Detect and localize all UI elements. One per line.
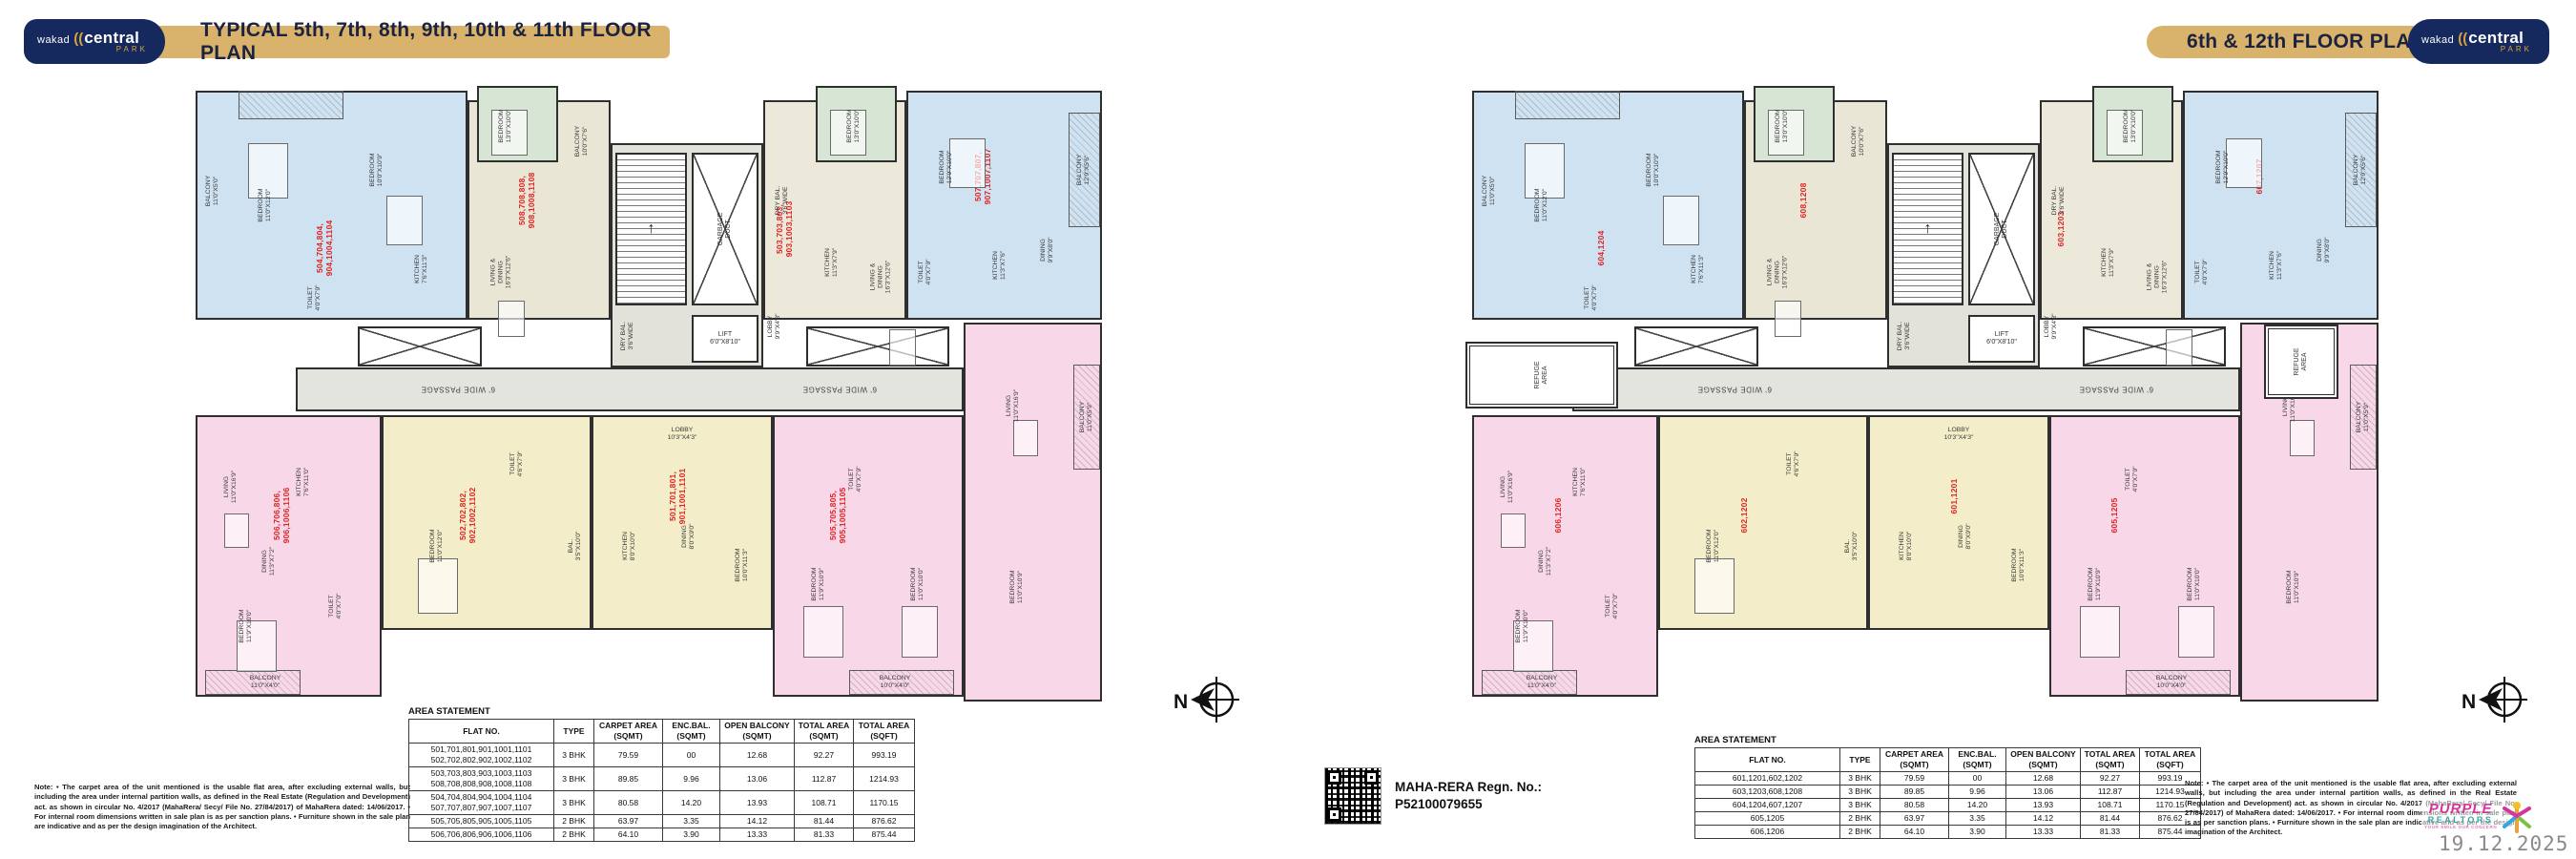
room-label: LIVING & DINING 16'3"X12'6" bbox=[2146, 261, 2168, 294]
passage-label: 6' WIDE PASSAGE bbox=[421, 385, 495, 393]
area-table-cell: 12.68 bbox=[2006, 772, 2081, 786]
room-label: BALCONY 12'9"X5'6" bbox=[1076, 155, 1091, 185]
area-table-header: ENC.BAL. (SQMT) bbox=[1949, 748, 2006, 772]
balcony-rail bbox=[239, 91, 343, 119]
flat-number-label: 506,706,806, 906,1006,1106 bbox=[272, 488, 291, 544]
furniture bbox=[1663, 196, 1699, 245]
area-table-cell: 108.71 bbox=[795, 791, 854, 815]
flat-number-label: 604,1204 bbox=[1596, 230, 1606, 265]
room-label: BEDROOM 11'9"X10'9" bbox=[811, 567, 826, 600]
floor-plan-unit bbox=[196, 91, 467, 320]
room-label: TOILET 4'6"X7'9" bbox=[509, 450, 525, 476]
area-table-row: 605,12052 BHK63.973.3514.1281.44876.62 bbox=[1695, 812, 2201, 826]
qr-finder-icon bbox=[1327, 770, 1341, 785]
area-table-cell: 3.90 bbox=[663, 828, 720, 842]
room-label: DRY BAL. 3'6"WIDE bbox=[1897, 322, 1912, 351]
area-table-cell: 81.44 bbox=[2081, 812, 2140, 826]
furniture bbox=[902, 606, 938, 658]
room-label: BALCONY 12'9"X5'6" bbox=[2353, 155, 2368, 185]
rera-number: P52100079655 bbox=[1395, 796, 1542, 813]
area-table-cell: 13.33 bbox=[2006, 826, 2081, 839]
area-table-row: 604,1204,607,12073 BHK80.5814.2013.93108… bbox=[1695, 799, 2201, 812]
area-table-row: 506,706,806,906,1006,11062 BHK64.103.901… bbox=[409, 828, 915, 842]
brand-logo-left: wakad (( central PARK bbox=[24, 19, 165, 64]
room-label: DINING 8'0"X9'0" bbox=[681, 523, 696, 549]
area-table-cell: 13.93 bbox=[720, 791, 795, 815]
area-table-cell: 63.97 bbox=[1880, 812, 1949, 826]
flat-number-label: 501,701,801, 901,1001,1101 bbox=[668, 469, 687, 525]
realtors-name-line2: REALTORS bbox=[2424, 816, 2497, 825]
room-label: BEDROOM 11'0"X10'0" bbox=[910, 567, 925, 600]
room-label: TOILET 4'0"X7'9" bbox=[2194, 259, 2210, 284]
rera-label: MAHA-RERA Regn. No.: bbox=[1395, 779, 1542, 796]
area-table-header: TYPE bbox=[1840, 748, 1880, 772]
area-table-header: FLAT NO. bbox=[1695, 748, 1840, 772]
room-label: BALCONY 11'0"X5'0" bbox=[205, 176, 220, 206]
room-label: BEDROOM 11'0"X10'9" bbox=[1009, 570, 1025, 603]
refuge-area-label: REFUGE AREA bbox=[1534, 361, 1549, 388]
furniture bbox=[2178, 606, 2214, 658]
rera-block: MAHA-RERA Regn. No.: P52100079655 bbox=[1324, 767, 1542, 825]
area-table-cell: 64.10 bbox=[1880, 826, 1949, 839]
furniture bbox=[224, 513, 249, 548]
room-label: LOBBY 9'9"X4'3" bbox=[767, 313, 782, 339]
furniture bbox=[2080, 606, 2120, 658]
area-table-row: 606,12062 BHK64.103.9013.3381.33875.44 bbox=[1695, 826, 2201, 839]
room-label: BEDROOM 11'9"X10'0" bbox=[239, 609, 254, 642]
north-compass-right: N bbox=[2460, 670, 2534, 734]
area-table-cell: 2 BHK bbox=[1840, 826, 1880, 839]
refuge-area-label: REFUGE AREA bbox=[2294, 347, 2309, 375]
area-table-cell: 13.33 bbox=[720, 828, 795, 842]
area-table-header: TOTAL AREA (SQFT) bbox=[2140, 748, 2201, 772]
room-label: DINING 11'3"X7'2" bbox=[261, 547, 277, 576]
right-plan-title: 6th & 12th FLOOR PLAN bbox=[2187, 31, 2425, 53]
date-stamp: 19.12.2025 bbox=[2439, 832, 2568, 855]
area-table-cell: 79.59 bbox=[1880, 772, 1949, 786]
room-label: KITCHEN 11'3"X7'6" bbox=[2269, 251, 2284, 280]
area-table-row: 504,704,804,904,1004,1104 507,707,807,90… bbox=[409, 791, 915, 815]
flat-number-label: 502,702,802, 902,1002,1102 bbox=[458, 488, 477, 544]
room-label: KITCHEN 11'3"X7'9" bbox=[2101, 248, 2116, 277]
flat-number-label: 608,1208 bbox=[1798, 182, 1808, 218]
room-label: BEDROOM 12'9"X10'0" bbox=[2215, 150, 2231, 183]
lift-label: LIFT 6'0"X8'10" bbox=[710, 331, 740, 346]
left-plan-title: TYPICAL 5th, 7th, 8th, 9th, 10th & 11th … bbox=[200, 19, 670, 65]
flat-number-label: 605,1205 bbox=[2109, 497, 2119, 533]
room-label: BEDROOM 11'0"X10'0" bbox=[2187, 567, 2202, 600]
room-label: KITCHEN 7'6"X11'0" bbox=[1572, 468, 1588, 496]
area-table-cell: 9.96 bbox=[663, 767, 720, 791]
service-duct bbox=[358, 326, 482, 367]
area-table-cell: 3 BHK bbox=[1840, 799, 1880, 812]
room-label: KITCHEN 11'3"X7'6" bbox=[992, 251, 1008, 280]
room-label: TOILET 4'0"X7'9" bbox=[1584, 284, 1599, 310]
room-label: DINING 9'9"X8'0" bbox=[2316, 237, 2332, 262]
furniture bbox=[2166, 329, 2192, 366]
realtors-tagline: YOUR SMILE OUR CONCERN bbox=[2424, 826, 2497, 830]
room-label: KITCHEN 7'6"X11'3" bbox=[414, 255, 429, 283]
room-label: LIVING 11'0"X16'9" bbox=[1500, 471, 1515, 503]
area-table-cell: 112.87 bbox=[795, 767, 854, 791]
furniture bbox=[498, 301, 525, 337]
area-table-cell: 14.12 bbox=[2006, 812, 2081, 826]
area-table-cell: 80.58 bbox=[1880, 799, 1949, 812]
staircase: ↑ bbox=[1892, 153, 1963, 305]
area-table-cell: 2 BHK bbox=[554, 815, 594, 828]
room-label: LOBBY 10'3"X4'3" bbox=[1944, 427, 1974, 442]
area-table-cell: 14.12 bbox=[720, 815, 795, 828]
room-label: BEDROOM 10'0"X11'3" bbox=[735, 548, 750, 581]
floor-plan-right: 604,1204608,1208603,1203607,1207606,1206… bbox=[1458, 86, 2393, 706]
area-table-cell: 876.62 bbox=[854, 815, 915, 828]
area-table-header: TYPE bbox=[554, 720, 594, 744]
staircase: ↑ bbox=[615, 153, 687, 305]
area-table-cell: 606,1206 bbox=[1695, 826, 1840, 839]
area-table-cell: 64.10 bbox=[594, 828, 663, 842]
realtors-name-line1: PURPLE bbox=[2424, 802, 2497, 816]
room-label: BALCONY 10'0"X4'0" bbox=[2156, 675, 2187, 690]
room-label: KITCHEN 7'6"X11'0" bbox=[296, 468, 311, 496]
area-table-cell: 603,1203,608,1208 bbox=[1695, 786, 1840, 799]
room-label: DRY BAL. 3'6"WIDE bbox=[775, 186, 790, 216]
logo-arcs-icon: (( bbox=[2458, 31, 2467, 46]
lift-label: LIFT 6'0"X8'10" bbox=[1986, 331, 2017, 346]
room-label: LOBBY 9'9"X4'3" bbox=[2044, 313, 2059, 339]
room-label: TOILET 4'0"X7'0" bbox=[1605, 593, 1620, 618]
furniture bbox=[1775, 301, 1801, 337]
area-table-cell: 604,1204,607,1207 bbox=[1695, 799, 1840, 812]
room-label: TOILET 4'0"X7'0" bbox=[328, 593, 343, 618]
area-table-cell: 506,706,806,906,1006,1106 bbox=[409, 828, 554, 842]
room-label: LIVING & DINING 16'3"X12'6" bbox=[1766, 256, 1788, 289]
service-duct bbox=[1634, 326, 1758, 367]
room-label: DINING 11'3"X7'2" bbox=[1538, 547, 1553, 576]
area-table-cell: 3 BHK bbox=[554, 744, 594, 767]
furniture bbox=[2226, 138, 2262, 188]
area-table-cell: 89.85 bbox=[594, 767, 663, 791]
stair-up-arrow-icon: ↑ bbox=[1924, 220, 1932, 238]
logo-wakad-text: wakad bbox=[2421, 35, 2454, 46]
logo-central-text: central bbox=[84, 30, 139, 46]
area-table-header: ENC.BAL. (SQMT) bbox=[663, 720, 720, 744]
area-table-cell: 14.20 bbox=[663, 791, 720, 815]
room-label: KITCHEN 7'6"X11'3" bbox=[1691, 255, 1706, 283]
room-label: DINING 8'0"X9'0" bbox=[1958, 523, 1973, 549]
logo-arcs-icon: (( bbox=[73, 31, 83, 46]
room-label: BALCONY 11'0"X5'0" bbox=[1482, 176, 1497, 206]
room-label: KITCHEN 8'0"X10'0" bbox=[1899, 532, 1914, 561]
qr-finder-icon bbox=[1327, 807, 1341, 822]
room-label: LIVING 11'0"X16'9" bbox=[223, 471, 239, 503]
svg-text:N: N bbox=[2462, 691, 2476, 713]
room-label: BEDROOM 10'0"X10'9" bbox=[369, 153, 384, 186]
flat-number-label: 602,1202 bbox=[1739, 497, 1749, 533]
garbage-duct-label: GARBAGE DUCT bbox=[1994, 213, 2009, 246]
room-label: BEDROOM 10'0"X10'9" bbox=[1646, 153, 1661, 186]
area-table-cell: 13.06 bbox=[720, 767, 795, 791]
area-table-header: CARPET AREA (SQMT) bbox=[1880, 748, 1949, 772]
area-table-cell: 3 BHK bbox=[1840, 786, 1880, 799]
furniture bbox=[1501, 513, 1526, 548]
area-table-cell: 80.58 bbox=[594, 791, 663, 815]
room-label: LIVING 11'0"X16'9" bbox=[1006, 389, 1021, 422]
area-table-cell: 3.90 bbox=[1949, 826, 2006, 839]
room-label: BEDROOM 11'0"X12'0" bbox=[1706, 529, 1721, 562]
area-table-left: FLAT NO.TYPECARPET AREA (SQMT)ENC.BAL. (… bbox=[408, 719, 915, 842]
area-table-cell: 13.06 bbox=[2006, 786, 2081, 799]
north-compass-left: N bbox=[1172, 670, 1246, 734]
svg-text:N: N bbox=[1174, 691, 1188, 713]
room-label: BEDROOM 13'0"X10'0" bbox=[846, 109, 862, 142]
area-table-cell: 605,1205 bbox=[1695, 812, 1840, 826]
area-table-cell: 81.33 bbox=[795, 828, 854, 842]
flat-number-label: 606,1206 bbox=[1553, 497, 1563, 533]
floor-plan-unit bbox=[382, 415, 592, 630]
qr-finder-icon bbox=[1364, 770, 1379, 785]
room-label: TOILET 4'0"X7'9" bbox=[848, 466, 863, 492]
flat-number-label: 508,708,808, 908,1008,1108 bbox=[517, 173, 536, 229]
room-label: BEDROOM 11'0"X12'0" bbox=[258, 188, 273, 221]
room-label: TOILET 4'0"X7'9" bbox=[918, 259, 933, 284]
room-label: KITCHEN 8'0"X10'0" bbox=[622, 532, 637, 561]
area-table-cell: 875.44 bbox=[854, 828, 915, 842]
furniture bbox=[889, 329, 916, 366]
area-table-cell: 79.59 bbox=[594, 744, 663, 767]
area-table-cell: 3.35 bbox=[1949, 812, 2006, 826]
flat-number-label: 504,704,804, 904,1004,1104 bbox=[315, 220, 334, 277]
room-label: BAL. 3'5"X10'0" bbox=[568, 532, 583, 561]
area-table-cell: 00 bbox=[1949, 772, 2006, 786]
room-label: BAL. 3'5"X10'0" bbox=[1844, 532, 1859, 561]
furniture bbox=[949, 138, 986, 188]
floor-plan-unit bbox=[196, 415, 382, 697]
service-duct bbox=[806, 326, 949, 367]
room-label: BALCONY 11'0"X5'9" bbox=[2356, 402, 2371, 432]
room-label: BEDROOM 10'0"X11'3" bbox=[2011, 548, 2026, 581]
area-statement-title: AREA STATEMENT bbox=[1694, 735, 2201, 745]
area-statement-title: AREA STATEMENT bbox=[408, 706, 915, 717]
area-table-right: FLAT NO.TYPECARPET AREA (SQMT)ENC.BAL. (… bbox=[1694, 747, 2201, 839]
area-table-row: 505,705,805,905,1005,11052 BHK63.973.351… bbox=[409, 815, 915, 828]
passage-label: 6' WIDE PASSAGE bbox=[802, 385, 877, 393]
room-label: TOILET 4'6"X7'9" bbox=[1786, 450, 1801, 476]
passage-label: 6' WIDE PASSAGE bbox=[1697, 385, 1772, 393]
area-statement-left: AREA STATEMENT FLAT NO.TYPECARPET AREA (… bbox=[408, 706, 915, 842]
room-label: DRY BAL. 3'6"WIDE bbox=[2051, 186, 2067, 216]
area-table-row: 603,1203,608,12083 BHK89.859.9613.06112.… bbox=[1695, 786, 2201, 799]
note-left: Note: • The carpet area of the unit ment… bbox=[34, 783, 410, 831]
area-table-row: 503,703,803,903,1003,1103 508,708,808,90… bbox=[409, 767, 915, 791]
area-table-cell: 2 BHK bbox=[1840, 812, 1880, 826]
furniture bbox=[1013, 420, 1038, 456]
area-table-header: OPEN BALCONY (SQMT) bbox=[720, 720, 795, 744]
logo-park-text: PARK bbox=[2501, 46, 2532, 53]
area-table-row: 501,701,801,901,1001,1101 502,702,802,90… bbox=[409, 744, 915, 767]
area-table-cell: 13.93 bbox=[2006, 799, 2081, 812]
room-label: KITCHEN 11'3"X7'9" bbox=[824, 248, 840, 277]
room-label: BEDROOM 13'0"X10'0" bbox=[2123, 109, 2138, 142]
room-label: BEDROOM 11'0"X12'0" bbox=[1534, 188, 1549, 221]
area-table-row: 601,1201,602,12023 BHK79.590012.6892.279… bbox=[1695, 772, 2201, 786]
floor-plan-unit bbox=[1472, 91, 1744, 320]
realtors-logo: PURPLE REALTORS YOUR SMILE OUR CONCERN bbox=[2421, 798, 2536, 834]
logo-wakad-text: wakad bbox=[37, 35, 70, 46]
area-table-cell: 503,703,803,903,1003,1103 508,708,808,90… bbox=[409, 767, 554, 791]
room-label: BEDROOM 11'9"X10'9" bbox=[2088, 567, 2103, 600]
area-table-header: FLAT NO. bbox=[409, 720, 554, 744]
room-label: BEDROOM 11'0"X12'0" bbox=[429, 529, 445, 562]
area-table-cell: 3 BHK bbox=[1840, 772, 1880, 786]
area-table-header: CARPET AREA (SQMT) bbox=[594, 720, 663, 744]
floor-plan-left: 504,704,804, 904,1004,1104508,708,808, 9… bbox=[181, 86, 1116, 706]
room-label: BALCONY 11'0"X4'0" bbox=[250, 675, 280, 690]
area-table-cell: 81.33 bbox=[2081, 826, 2140, 839]
area-table-cell: 00 bbox=[663, 744, 720, 767]
area-table-cell: 3.35 bbox=[663, 815, 720, 828]
area-table-cell: 3 BHK bbox=[554, 791, 594, 815]
flat-number-label: 603,1203 bbox=[2056, 211, 2066, 246]
area-statement-right: AREA STATEMENT FLAT NO.TYPECARPET AREA (… bbox=[1694, 735, 2201, 839]
furniture bbox=[2290, 420, 2315, 456]
flat-number-label: 601,1201 bbox=[1949, 478, 1959, 513]
floor-plan-unit bbox=[1658, 415, 1868, 630]
area-table-cell: 89.85 bbox=[1880, 786, 1949, 799]
furniture bbox=[386, 196, 423, 245]
stair-up-arrow-icon: ↑ bbox=[648, 220, 655, 238]
service-duct bbox=[2083, 326, 2226, 367]
logo-central-text: central bbox=[2468, 30, 2524, 46]
room-label: LIVING & DINING 16'3"X12'6" bbox=[489, 256, 511, 289]
qr-code bbox=[1324, 767, 1381, 825]
north-compass-icon: N bbox=[2460, 670, 2534, 729]
room-label: BEDROOM 12'9"X10'0" bbox=[939, 150, 954, 183]
room-label: BEDROOM 11'0"X10'9" bbox=[2286, 570, 2301, 603]
area-table-cell: 1170.15 bbox=[854, 791, 915, 815]
area-table-cell: 12.68 bbox=[720, 744, 795, 767]
room-label: BALCONY 11'0"X5'9" bbox=[1079, 402, 1094, 432]
floor-plan-sheet: { "header_left": { "banner": "TYPICAL 5t… bbox=[0, 0, 2576, 859]
area-table-cell: 14.20 bbox=[1949, 799, 2006, 812]
room-label: BALCONY 10'0"X7'6" bbox=[574, 126, 590, 157]
floor-plan-unit bbox=[1472, 415, 1658, 697]
area-table-cell: 112.87 bbox=[2081, 786, 2140, 799]
room-label: TOILET 4'0"X7'9" bbox=[2125, 466, 2140, 492]
room-label: LIVING & DINING 16'3"X12'6" bbox=[869, 261, 891, 294]
area-table-cell: 601,1201,602,1202 bbox=[1695, 772, 1840, 786]
brand-logo-right: wakad (( central PARK bbox=[2408, 19, 2549, 64]
room-label: BEDROOM 13'0"X10'0" bbox=[1775, 109, 1790, 142]
flat-number-label: 505,705,805, 905,1005,1105 bbox=[828, 488, 847, 544]
garbage-duct-label: GARBAGE DUCT bbox=[717, 213, 733, 246]
furniture bbox=[803, 606, 843, 658]
room-label: BEDROOM 11'9"X10'0" bbox=[1515, 609, 1530, 642]
area-table-cell: 2 BHK bbox=[554, 828, 594, 842]
area-table-cell: 501,701,801,901,1001,1101 502,702,802,90… bbox=[409, 744, 554, 767]
area-table-cell: 92.27 bbox=[795, 744, 854, 767]
area-table-header: TOTAL AREA (SQMT) bbox=[2081, 748, 2140, 772]
area-table-header: OPEN BALCONY (SQMT) bbox=[2006, 748, 2081, 772]
area-table-cell: 63.97 bbox=[594, 815, 663, 828]
area-table-header: TOTAL AREA (SQFT) bbox=[854, 720, 915, 744]
area-table-cell: 504,704,804,904,1004,1104 507,707,807,90… bbox=[409, 791, 554, 815]
logo-park-text: PARK bbox=[116, 46, 148, 53]
area-table-cell: 9.96 bbox=[1949, 786, 2006, 799]
area-table-cell: 81.44 bbox=[795, 815, 854, 828]
realtors-star-icon bbox=[2501, 799, 2533, 833]
room-label: LOBBY 10'3"X4'3" bbox=[668, 427, 697, 442]
room-label: BALCONY 11'0"X4'0" bbox=[1527, 675, 1557, 690]
room-label: BALCONY 10'0"X4'0" bbox=[880, 675, 910, 690]
furniture bbox=[418, 558, 458, 614]
passage-label: 6' WIDE PASSAGE bbox=[2079, 385, 2153, 393]
furniture bbox=[1694, 558, 1735, 614]
area-table-cell: 92.27 bbox=[2081, 772, 2140, 786]
room-label: BALCONY 10'0"X7'6" bbox=[1851, 126, 1866, 157]
balcony-rail bbox=[1515, 91, 1620, 119]
area-table-header: TOTAL AREA (SQMT) bbox=[795, 720, 854, 744]
room-label: DRY BAL. 3'6"WIDE bbox=[620, 322, 635, 351]
room-label: BEDROOM 13'0"X10'0" bbox=[498, 109, 513, 142]
area-table-cell: 993.19 bbox=[854, 744, 915, 767]
room-label: TOILET 4'0"X7'9" bbox=[307, 284, 322, 310]
north-compass-icon: N bbox=[1172, 670, 1246, 729]
left-plan-title-banner: TYPICAL 5th, 7th, 8th, 9th, 10th & 11th … bbox=[86, 26, 670, 58]
area-table-cell: 3 BHK bbox=[554, 767, 594, 791]
area-table-cell: 1214.93 bbox=[854, 767, 915, 791]
room-label: DINING 9'9"X8'0" bbox=[1040, 237, 1055, 262]
area-table-cell: 505,705,805,905,1005,1105 bbox=[409, 815, 554, 828]
area-table-cell: 108.71 bbox=[2081, 799, 2140, 812]
